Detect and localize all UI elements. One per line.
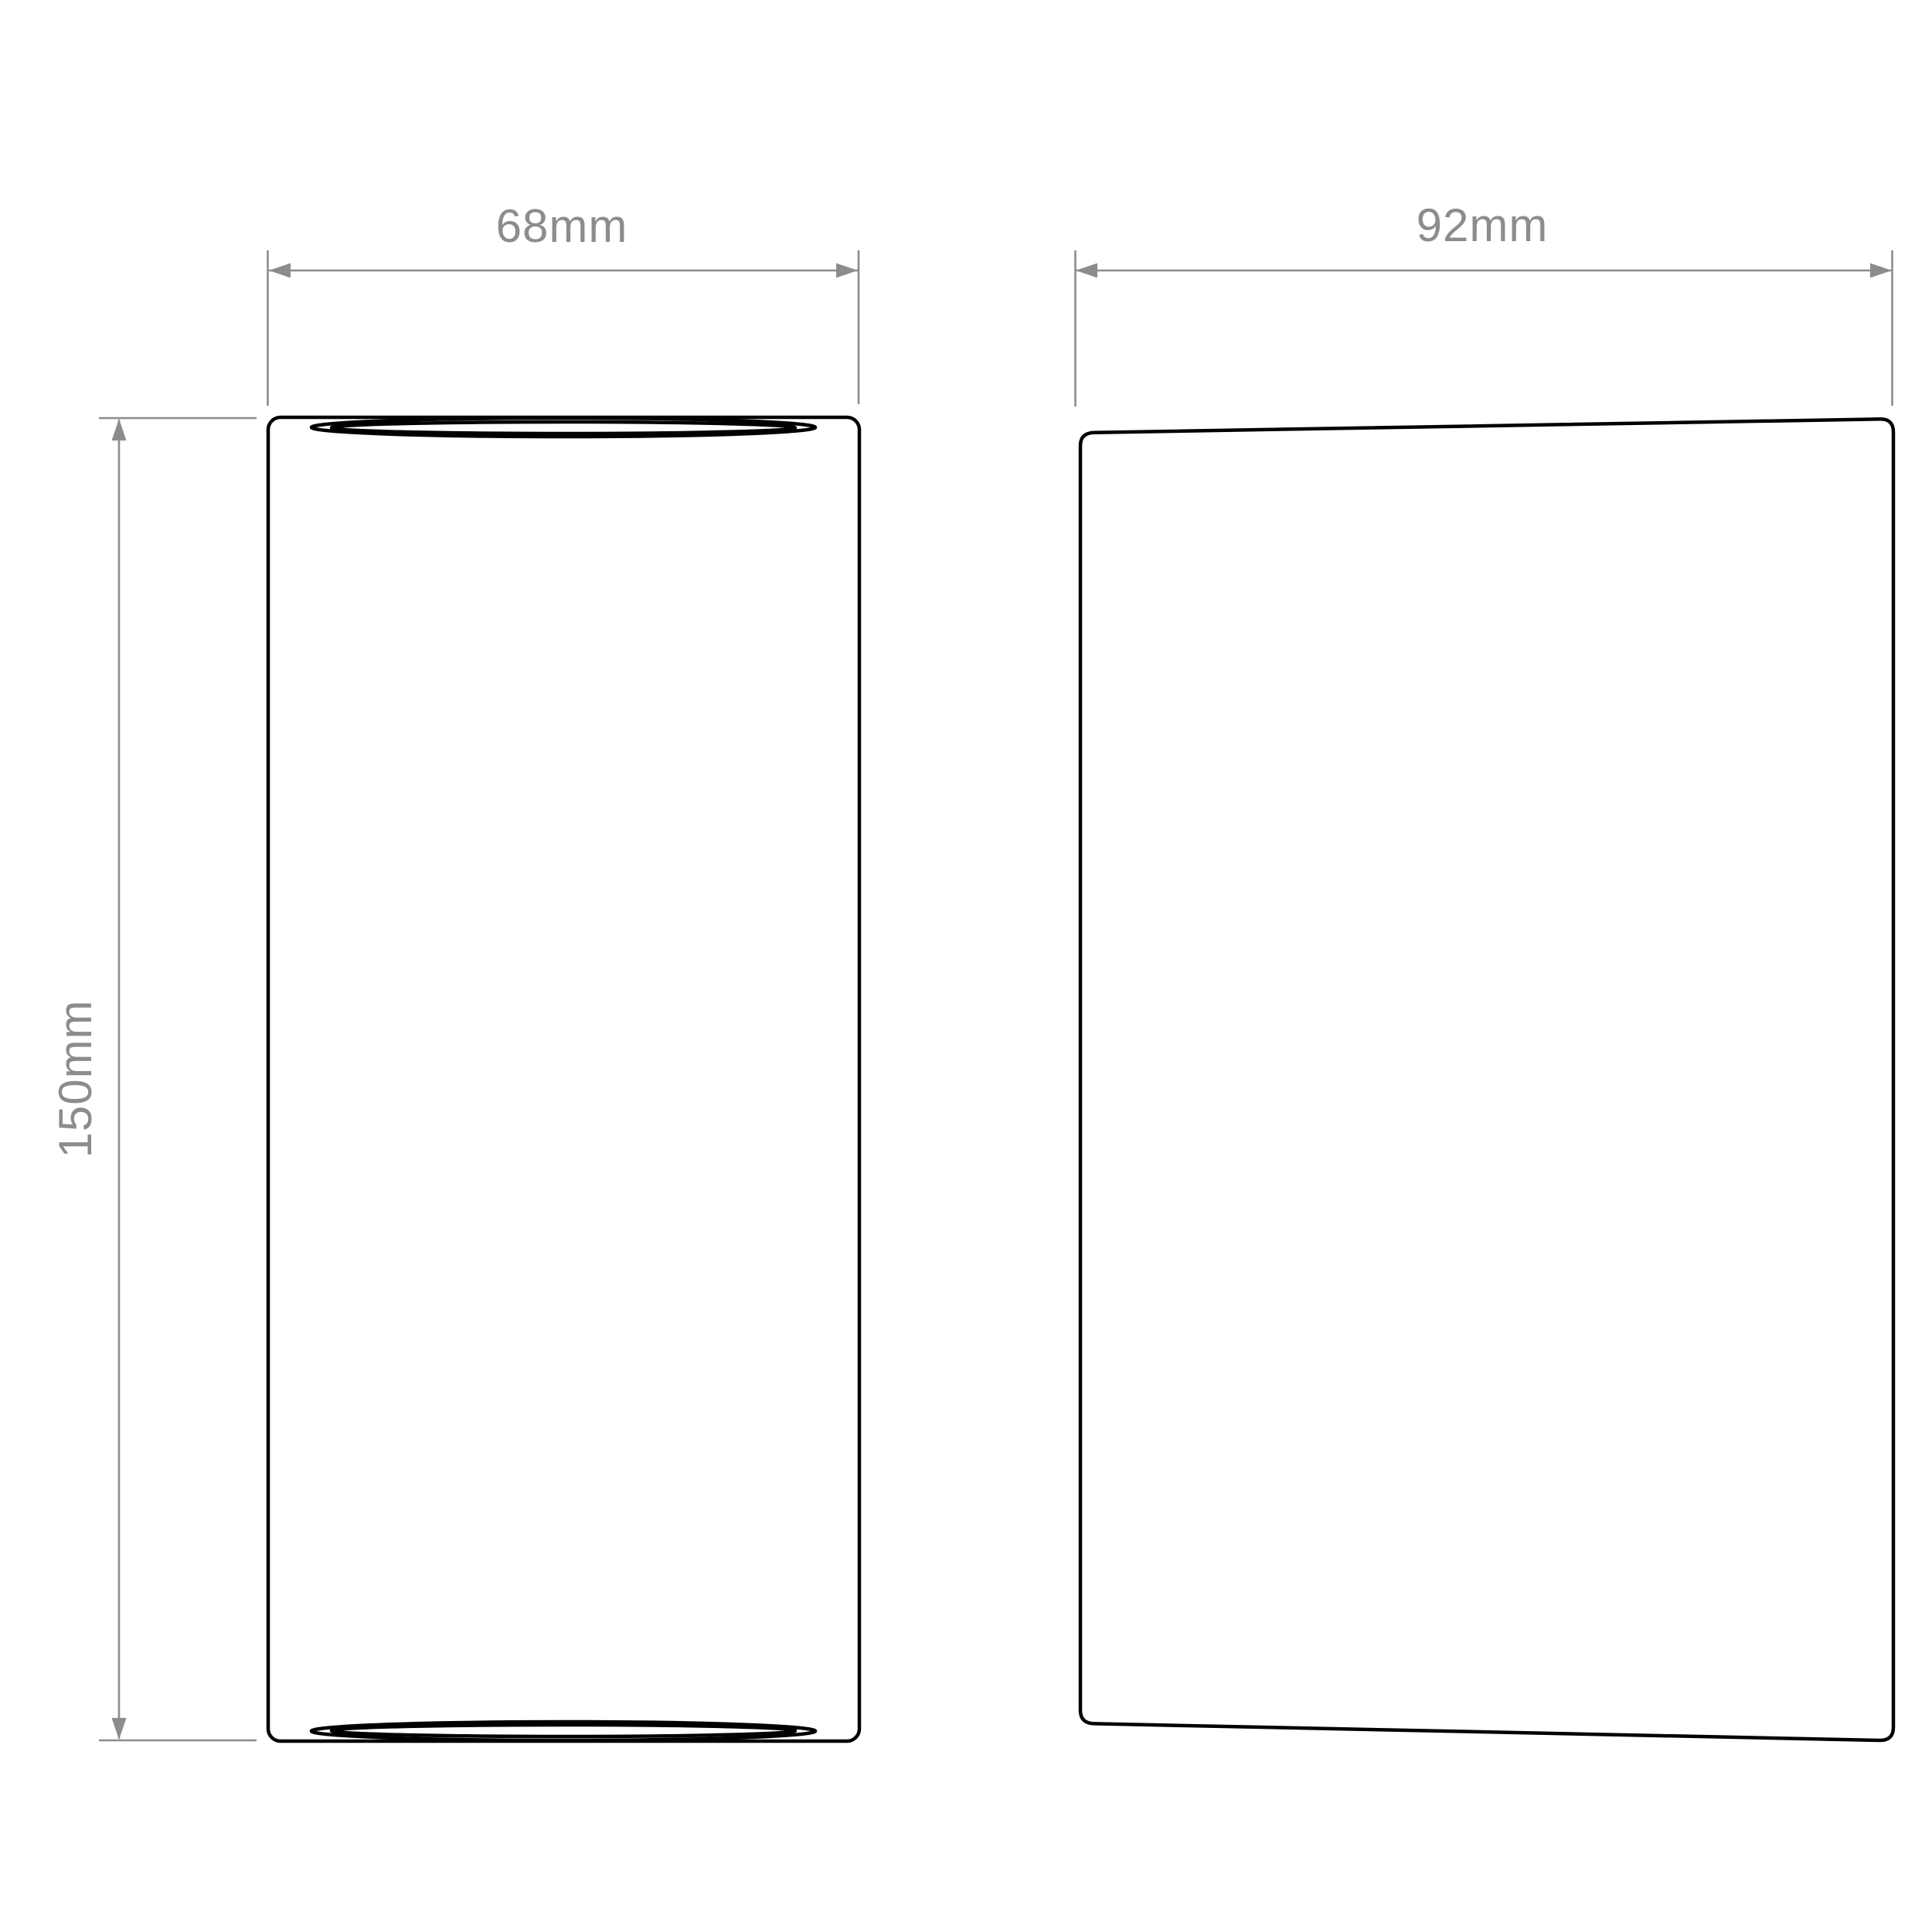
arrow-up-icon: [112, 419, 127, 440]
dimension-drawing: 68mm 92mm 150mm: [0, 0, 1932, 1932]
dim-side-width-label: 92mm: [1417, 199, 1549, 251]
dim-front-width: 68mm: [268, 200, 859, 406]
front-view: [268, 417, 859, 1741]
front-view-body-outline: [268, 417, 859, 1741]
dim-front-width-label: 68mm: [496, 200, 628, 252]
front-view-bottom-opening-inner-rim: [332, 1725, 795, 1736]
drawing-svg: 68mm 92mm 150mm: [0, 0, 1932, 1932]
side-view: [1080, 419, 1893, 1740]
arrow-left-icon: [269, 264, 291, 278]
arrow-left-icon: [1076, 264, 1097, 278]
arrow-right-icon: [1870, 264, 1892, 278]
side-view-body-outline: [1080, 419, 1893, 1740]
arrow-right-icon: [836, 264, 858, 278]
arrow-down-icon: [112, 1718, 127, 1740]
dim-height-label: 150mm: [49, 999, 101, 1158]
dim-side-width: 92mm: [1076, 199, 1893, 406]
front-view-top-opening-inner-rim: [332, 422, 795, 434]
dim-height: 150mm: [49, 418, 257, 1740]
